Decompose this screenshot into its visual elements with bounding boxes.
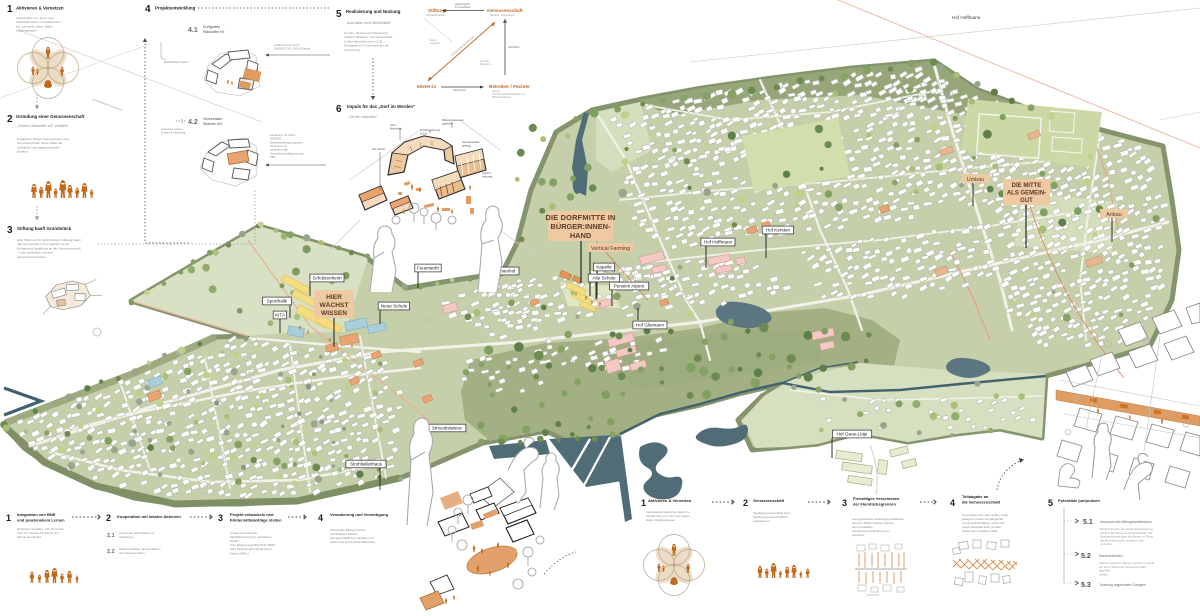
svg-text:„Aus Ideen wird Wirklichkeit": „Aus Ideen wird Wirklichkeit"	[346, 21, 392, 25]
svg-text:Freiwilliges Verschieben der F: Freiwilliges Verschieben der Flurstücksg…	[853, 496, 901, 506]
svg-text:verkauft/kauft Grundstück: verkauft/kauft Grundstück	[92, 97, 124, 112]
svg-text:4.2: 4.2	[188, 119, 198, 126]
svg-text:Gemeinsam Wohnen eG: Gemeinsam Wohnen eG	[203, 117, 223, 126]
svg-text:Nachverdichten: Nachverdichten	[1099, 554, 1123, 558]
svg-text:„Grünes Wadsüttel eG" entsteht: „Grünes Wadsüttel eG" entsteht	[17, 124, 68, 128]
svg-text:Errichtung des Gemeinwohls: Errichtung des Gemeinwohls	[451, 35, 476, 57]
svg-text:KITA: KITA	[275, 313, 286, 318]
svg-text:HAND: HAND	[570, 231, 592, 240]
svg-text:Vereine, z.B. Genossenschaftsg: Vereine, z.B. Genossenschaftsgarten e.V.…	[492, 90, 526, 99]
svg-text:Genossenschaft: Genossenschaft	[753, 498, 785, 503]
svg-text:Flächen zwischen Häusern könne: Flächen zwischen Häusern können im Laufe…	[1099, 561, 1155, 576]
svg-text:Dorfgarten Wadsüttel eV: Dorfgarten Wadsüttel eV	[203, 25, 225, 34]
svg-text:Sporthalle: Sporthalle	[267, 299, 288, 304]
svg-text:HIER: HIER	[326, 294, 342, 301]
svg-text:Kapelle: Kapelle	[596, 265, 612, 270]
svg-text:Neue Schule: Neue Schule	[381, 304, 408, 309]
svg-text:Verankerung und Verstetigung: Verankerung und Verstetigung	[330, 512, 389, 517]
svg-text:Hof Gliemann: Hof Gliemann	[636, 323, 665, 328]
svg-text:2.2: 2.2	[107, 549, 115, 555]
svg-text:Gründung einer Genossenschaft: Gründung einer Genossenschaft	[16, 114, 85, 119]
svg-text:GUT: GUT	[1020, 198, 1033, 204]
svg-text:WÄCHST: WÄCHST	[320, 301, 349, 309]
svg-text:Projektentwicklung: Projektentwicklung	[155, 6, 196, 11]
svg-text:Umbau, Neubau und Sanierung er: Umbau, Neubau und Sanierung erfolgt in E…	[344, 31, 393, 52]
svg-text:Leerstand nutzen, Umbau & Sani: Leerstand nutzen, Umbau & Sanierung	[161, 127, 186, 135]
svg-text:Interessierte Menschen laden z: Interessierte Menschen laden zu Infoaben…	[646, 510, 691, 522]
svg-text:Hof Gaus-Lütje: Hof Gaus-Lütje	[837, 432, 868, 437]
svg-text:Besitzer können ihre Einfamili: Besitzer können ihre Einfamilienhäuser b…	[1100, 527, 1154, 546]
svg-text:zahlen Miete: zahlen Miete	[453, 89, 467, 92]
svg-text:DIE DORFMITTE IN: DIE DORFMITTE IN	[545, 213, 615, 222]
svg-text:Realisierung und Nutzung: Realisierung und Nutzung	[346, 9, 401, 14]
svg-text:Bauherrin, Eigentümerin: Bauherrin, Eigentümerin	[490, 14, 515, 17]
svg-text:zahlt Erbpacht für Grundstück: zahlt Erbpacht für Grundstück	[455, 3, 471, 9]
svg-text:Antrag auf politische Modellfö: Antrag auf politische Modellförderung fü…	[230, 531, 276, 555]
svg-text:Alte Schule: Alte Schule	[372, 147, 386, 151]
svg-text:Integration von BNE und praxis: Integration von BNE und praxisnahem Lern…	[17, 512, 65, 522]
svg-text:Potentiale (um)nutzen: Potentiale (um)nutzen	[1058, 498, 1100, 503]
svg-text:Feuerwehr: Feuerwehr	[417, 266, 439, 271]
svg-text:BÜRGER:INNEN-: BÜRGER:INNEN-	[551, 222, 611, 231]
svg-text:3: 3	[7, 225, 13, 236]
svg-text:Vertical Farming: Vertical Farming	[591, 246, 630, 252]
svg-text:Praxisnahe Bildung fördert nac: Praxisnahe Bildung fördert nachhaltiges …	[330, 528, 375, 544]
svg-text:DIE MITTE: DIE MITTE	[1012, 183, 1042, 189]
svg-text:Aktivieren & Vernetzen: Aktivieren & Vernetzen	[16, 6, 64, 11]
svg-text:4: 4	[145, 4, 151, 15]
svg-text:Strukturen schaffen, z.B. als: Strukturen schaffen, z.B. als Verein ode…	[17, 527, 65, 539]
svg-text:Impuls für das „Dorf im Werden: Impuls für das „Dorf im Werden"	[347, 104, 415, 109]
svg-text:Partnerschaften mit Landwirten: Partnerschaften mit Landwirten und Inter…	[119, 547, 161, 555]
svg-text:4: 4	[950, 498, 955, 508]
svg-text:5.3: 5.3	[1081, 582, 1091, 589]
svg-text:Genossenschaft: Genossenschaft	[487, 8, 523, 13]
svg-text:So entsteht eine sehr große, m: So entsteht eine sehr große, mittig gele…	[961, 513, 1009, 533]
svg-text:5.2: 5.2	[1081, 553, 1091, 560]
svg-text:Schulerweiterung & Kita: Schulerweiterung & Kita	[420, 128, 441, 136]
svg-text:Förderung z.B. durch LEADER, Ö: Förderung z.B. durch LEADER, ÖKL, WS & S…	[274, 43, 310, 51]
svg-text:ALS GEMEIN-: ALS GEMEIN-	[1007, 191, 1046, 197]
svg-text:Anbau: Anbau	[1106, 212, 1122, 218]
svg-text:Förderung z.B. durch LEADER, D: Förderung z.B. durch LEADER, Dorfentwick…	[270, 133, 305, 159]
svg-text:zahlt Pacht: zahlt Pacht	[508, 46, 520, 49]
svg-text:Projekt entwickeln und Förderm: Projekt entwickeln und Fördermittelanträ…	[230, 512, 282, 522]
svg-text:Grundstückgeberin: Grundstückgeberin	[426, 14, 446, 17]
svg-text:1: 1	[641, 498, 646, 508]
svg-text:5: 5	[1048, 498, 1053, 508]
svg-text:2: 2	[106, 513, 111, 523]
svg-text:Hof Hoffmann: Hof Hoffmann	[952, 15, 981, 20]
svg-text:„Ort des Wandels": „Ort des Wandels"	[348, 115, 378, 119]
svg-text:Engagierte Bürger:innen gründe: Engagierte Bürger:innen gründen eine Gen…	[17, 137, 70, 154]
svg-text:Betreiber / Pächter: Betreiber / Pächter	[489, 84, 530, 89]
svg-text:4: 4	[318, 513, 323, 523]
svg-text:Mieter:in: Mieter:in	[417, 84, 436, 89]
svg-text:Jugend- werkstatt: Jugend- werkstatt	[482, 171, 493, 179]
svg-text:5.1: 5.1	[1083, 519, 1093, 526]
svg-text:Schützenheim: Schützenheim	[312, 276, 341, 281]
svg-text:Kooperation mit lokalen Akteur: Kooperation mit lokalen Akteuren	[117, 514, 181, 519]
svg-text:Bildungsrestaurant gastlokal: Bildungsrestaurant gastlokal	[442, 118, 464, 126]
svg-text:1: 1	[6, 513, 11, 523]
svg-text:5: 5	[336, 9, 342, 20]
svg-text:Interessierte von inner- und a: Interessierte von inner- und außerhalb l…	[16, 16, 61, 33]
svg-text:Gemeinde stellt Fläche zur Ver: Gemeinde stellt Fläche zur Verfügung	[119, 531, 156, 539]
svg-text:Stiftung kauft Grundstück: Stiftung kauft Grundstück	[17, 226, 72, 231]
svg-text:Pension Alpers: Pension Alpers	[614, 284, 645, 289]
svg-text:2.1: 2.1	[107, 533, 115, 539]
svg-text:vermietet Programm: vermietet Programm	[480, 60, 491, 66]
svg-text:Strohballenhaus: Strohballenhaus	[350, 462, 383, 467]
svg-text:Lang gestreckte Siedlungsgrund: Lang gestreckte Siedlungsgrundstücke aus…	[852, 517, 905, 537]
svg-text:Umnutzen als Mehrgartenleinhau: Umnutzen als Mehrgartenleinhaus	[1100, 520, 1152, 524]
svg-text:4.1: 4.1	[188, 27, 198, 34]
svg-text:Umbau: Umbau	[967, 177, 984, 183]
svg-text:6: 6	[336, 104, 342, 115]
svg-text:Nutzung ungenutzter Garagen: Nutzung ungenutzter Garagen	[1100, 583, 1146, 587]
svg-text:Gemeinschafts- garten: Gemeinschafts- garten	[462, 140, 481, 148]
svg-text:3: 3	[842, 498, 847, 508]
svg-text:Streuobstwiese: Streuobstwiese	[432, 426, 463, 431]
svg-text:2: 2	[7, 114, 13, 125]
svg-text:WISSEN: WISSEN	[321, 310, 347, 317]
svg-text:Siedlergenossenschaft kann Sie: Siedlergenossenschaft kann Siedlung geme…	[753, 511, 792, 523]
svg-text:Hof Kersten: Hof Kersten	[766, 228, 791, 233]
svg-text:Teilabgabe an die Genossenscha: Teilabgabe an die Genossenschaft	[962, 494, 1001, 504]
svg-text:Dorf-/ Markthalle: Dorf-/ Markthalle	[390, 123, 403, 131]
svg-text:Eine Stiftung (z.B. Edith Mary: Eine Stiftung (z.B. Edith Maryon Stiftun…	[17, 238, 82, 259]
svg-text:Aktivieren & Vernetzen: Aktivieren & Vernetzen	[648, 498, 692, 503]
svg-text:Hof Hoffmann: Hof Hoffmann	[704, 240, 733, 245]
svg-text:1: 1	[7, 4, 13, 15]
svg-text:baut & vermietet: baut & vermietet	[430, 39, 440, 45]
svg-text:Alte Schule: Alte Schule	[592, 276, 616, 281]
svg-text:2: 2	[743, 498, 748, 508]
svg-text:Brachflächen nutzen: Brachflächen nutzen	[164, 60, 189, 64]
svg-text:3: 3	[218, 513, 223, 523]
